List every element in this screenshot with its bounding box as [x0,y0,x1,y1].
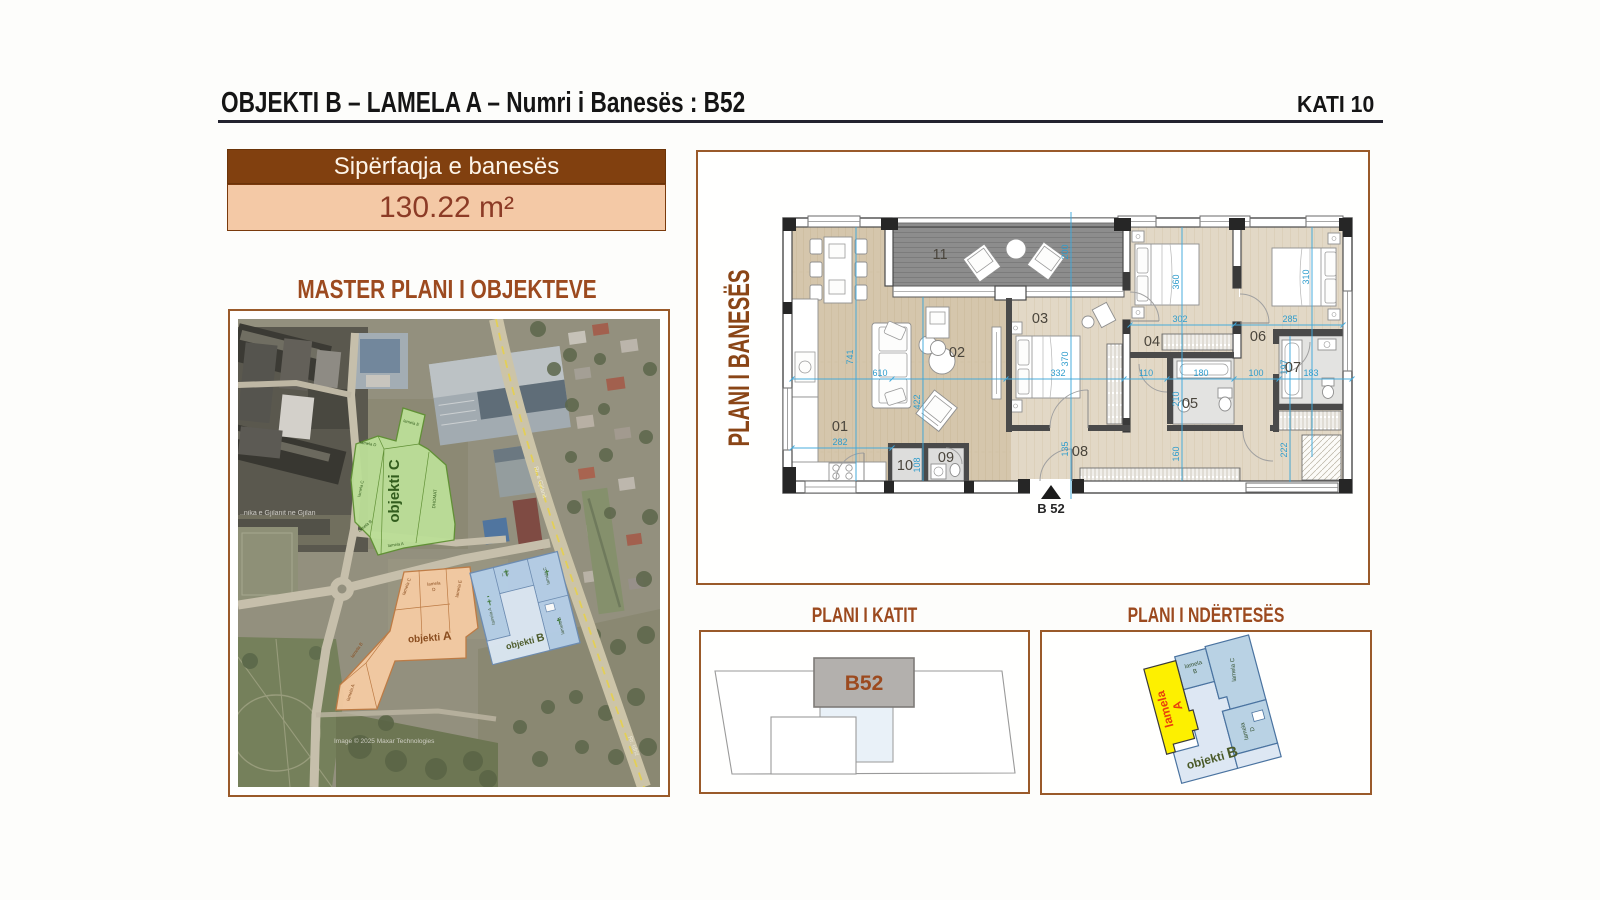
svg-text:05: 05 [1182,396,1198,412]
svg-text:07: 07 [1285,360,1301,376]
svg-text:302: 302 [1172,314,1187,324]
svg-text:09: 09 [938,450,954,466]
svg-text:B 52: B 52 [1037,501,1064,516]
svg-text:04: 04 [1144,334,1160,350]
svg-text:11: 11 [932,247,947,263]
svg-text:02: 02 [949,345,965,361]
svg-text:08: 08 [1072,444,1088,460]
svg-text:Image © 2025 Maxar Technologie: Image © 2025 Maxar Technologies [334,737,435,745]
svg-text:610: 610 [872,368,887,378]
svg-text:03: 03 [1032,311,1048,327]
svg-text:282: 282 [832,437,847,447]
svg-text:135: 135 [1060,441,1070,456]
svg-text:332: 332 [1050,368,1065,378]
svg-text:285: 285 [1282,314,1297,324]
svg-text:100: 100 [1248,368,1263,378]
svg-text:222: 222 [1279,442,1289,457]
svg-text:PLANI I BANESËS: PLANI I BANESËS [723,270,756,447]
svg-text:200: 200 [1060,244,1070,259]
svg-text:..nika e Gjilanit ne Gjilan: ..nika e Gjilanit ne Gjilan [240,510,316,517]
svg-text:183: 183 [1303,368,1318,378]
svg-text:360: 360 [1171,274,1181,289]
svg-text:108: 108 [912,457,922,472]
svg-text:01: 01 [832,419,848,435]
svg-text:10: 10 [897,458,913,474]
svg-text:objekti C: objekti C [386,459,403,523]
svg-text:422: 422 [912,394,922,409]
svg-text:210: 210 [1171,391,1181,406]
svg-text:06: 06 [1250,329,1266,345]
svg-text:370: 370 [1060,351,1070,366]
svg-text:160: 160 [1171,446,1181,461]
svg-text:741: 741 [845,349,855,364]
svg-text:180: 180 [1193,368,1208,378]
svg-text:B52: B52 [845,672,884,695]
svg-text:310: 310 [1301,269,1311,284]
svg-text:110: 110 [1139,368,1153,378]
